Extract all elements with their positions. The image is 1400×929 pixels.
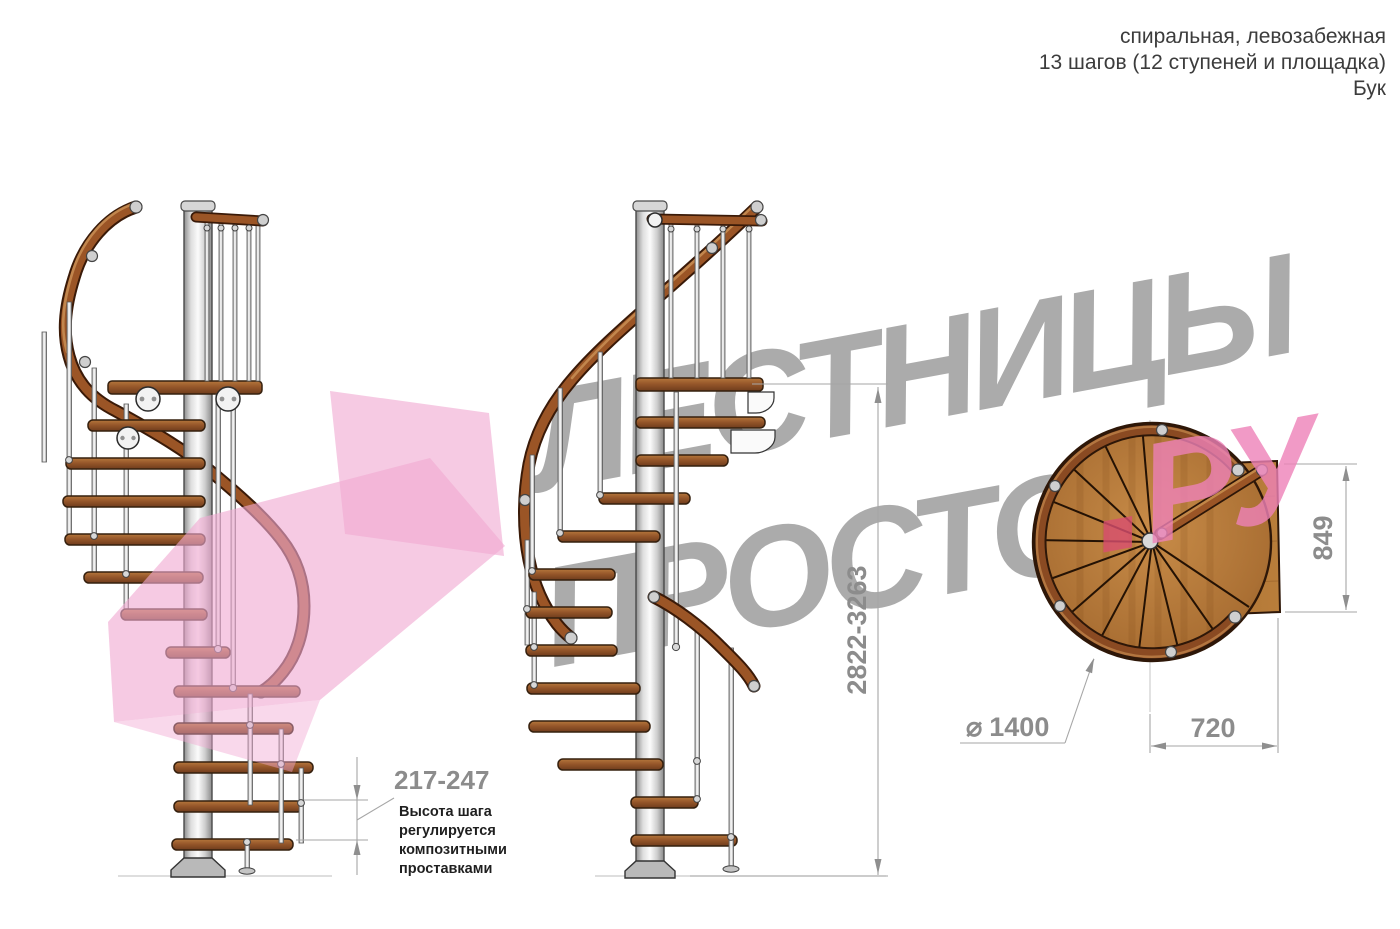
tread bbox=[529, 721, 650, 732]
tread bbox=[527, 683, 640, 694]
tread bbox=[526, 607, 612, 618]
baluster bbox=[558, 388, 563, 531]
baluster-joints bbox=[524, 492, 735, 841]
baluster bbox=[42, 332, 47, 462]
handrail-end-cap bbox=[749, 681, 760, 692]
connector-disc bbox=[216, 387, 240, 411]
technical-drawing-page: ЛЕСТНИЦЫ ПРОСТО bbox=[0, 0, 1400, 929]
handrail-connector-sleeve bbox=[520, 495, 531, 506]
platform-tread bbox=[636, 378, 763, 391]
ring-connector-sleeve bbox=[1050, 481, 1061, 492]
handrail-connector-sleeve bbox=[80, 357, 91, 368]
pole-base-flange bbox=[171, 858, 225, 877]
tread bbox=[172, 839, 293, 850]
ring-end-cap bbox=[1229, 611, 1241, 623]
tread bbox=[88, 420, 205, 431]
platform-railing bbox=[196, 215, 269, 382]
tread bbox=[63, 496, 205, 507]
baluster bbox=[525, 540, 530, 645]
tread bbox=[558, 531, 660, 542]
tread bbox=[636, 417, 765, 428]
handrail-end-cap bbox=[751, 201, 763, 213]
suffix-letters: РУ bbox=[1127, 386, 1329, 574]
tread bbox=[631, 835, 737, 846]
step-height-dimension: 217-247 Высота шага регулируется компози… bbox=[296, 757, 507, 877]
rod-foot bbox=[723, 866, 739, 872]
ring-connector-sleeve bbox=[1166, 647, 1177, 658]
step-height-value: 217-247 bbox=[394, 765, 489, 795]
connector-disc bbox=[117, 427, 139, 449]
connector-disc bbox=[136, 387, 160, 411]
baluster bbox=[530, 455, 535, 569]
baluster bbox=[92, 368, 97, 578]
watermark-brand-suffix: .РУ bbox=[1077, 395, 1327, 576]
landing-width-value: 720 bbox=[1190, 713, 1235, 743]
total-height-value: 2822-3263 bbox=[842, 565, 872, 694]
baluster bbox=[598, 352, 603, 493]
tread bbox=[526, 645, 617, 656]
support-bracket bbox=[731, 430, 775, 453]
pole-base-flange bbox=[625, 861, 675, 878]
tread bbox=[66, 458, 205, 469]
diameter-annotation: ⌀1400 bbox=[960, 658, 1094, 743]
step-height-note-line4: проставками bbox=[399, 861, 492, 877]
center-staircase-elevation bbox=[520, 201, 887, 878]
railing-end-cap bbox=[756, 215, 767, 226]
rod-foot bbox=[239, 868, 255, 874]
diameter-value: ⌀1400 bbox=[966, 712, 1049, 742]
platform-tread bbox=[108, 381, 262, 394]
tread bbox=[631, 797, 698, 808]
handrail-connector-sleeve bbox=[87, 251, 98, 262]
tread bbox=[636, 455, 728, 466]
baluster bbox=[532, 592, 537, 683]
step-height-note-line1: Высота шага bbox=[399, 804, 493, 820]
pole-top-cap bbox=[181, 201, 215, 211]
ring-connector-sleeve bbox=[1055, 601, 1066, 612]
handrail-end-cap bbox=[565, 632, 577, 644]
pole-top-cap bbox=[633, 201, 667, 211]
railing-end-cap bbox=[258, 215, 269, 226]
baluster bbox=[695, 620, 700, 797]
railing-joint-disc bbox=[648, 213, 662, 227]
handrail-connector-sleeve bbox=[707, 243, 718, 254]
tread bbox=[558, 759, 663, 770]
step-height-note-line2: регулируется bbox=[399, 823, 496, 839]
tread bbox=[529, 569, 615, 580]
support-rod bbox=[245, 843, 250, 870]
handrail-end-cap bbox=[130, 201, 142, 213]
handrail-end-cap bbox=[649, 592, 660, 603]
support-bracket bbox=[748, 392, 774, 413]
step-height-note-line3: композитными bbox=[399, 842, 507, 858]
